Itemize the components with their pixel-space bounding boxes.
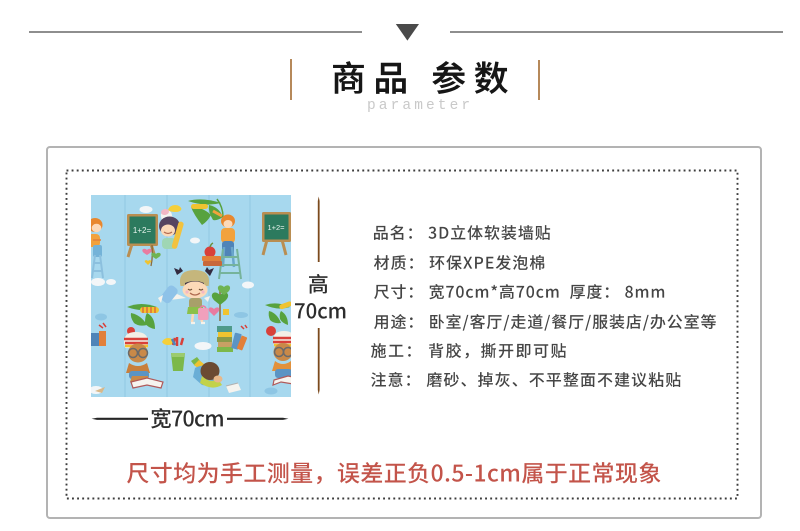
svg-text:1+2=: 1+2= <box>133 226 152 235</box>
svg-text:1+2=: 1+2= <box>267 223 285 232</box>
